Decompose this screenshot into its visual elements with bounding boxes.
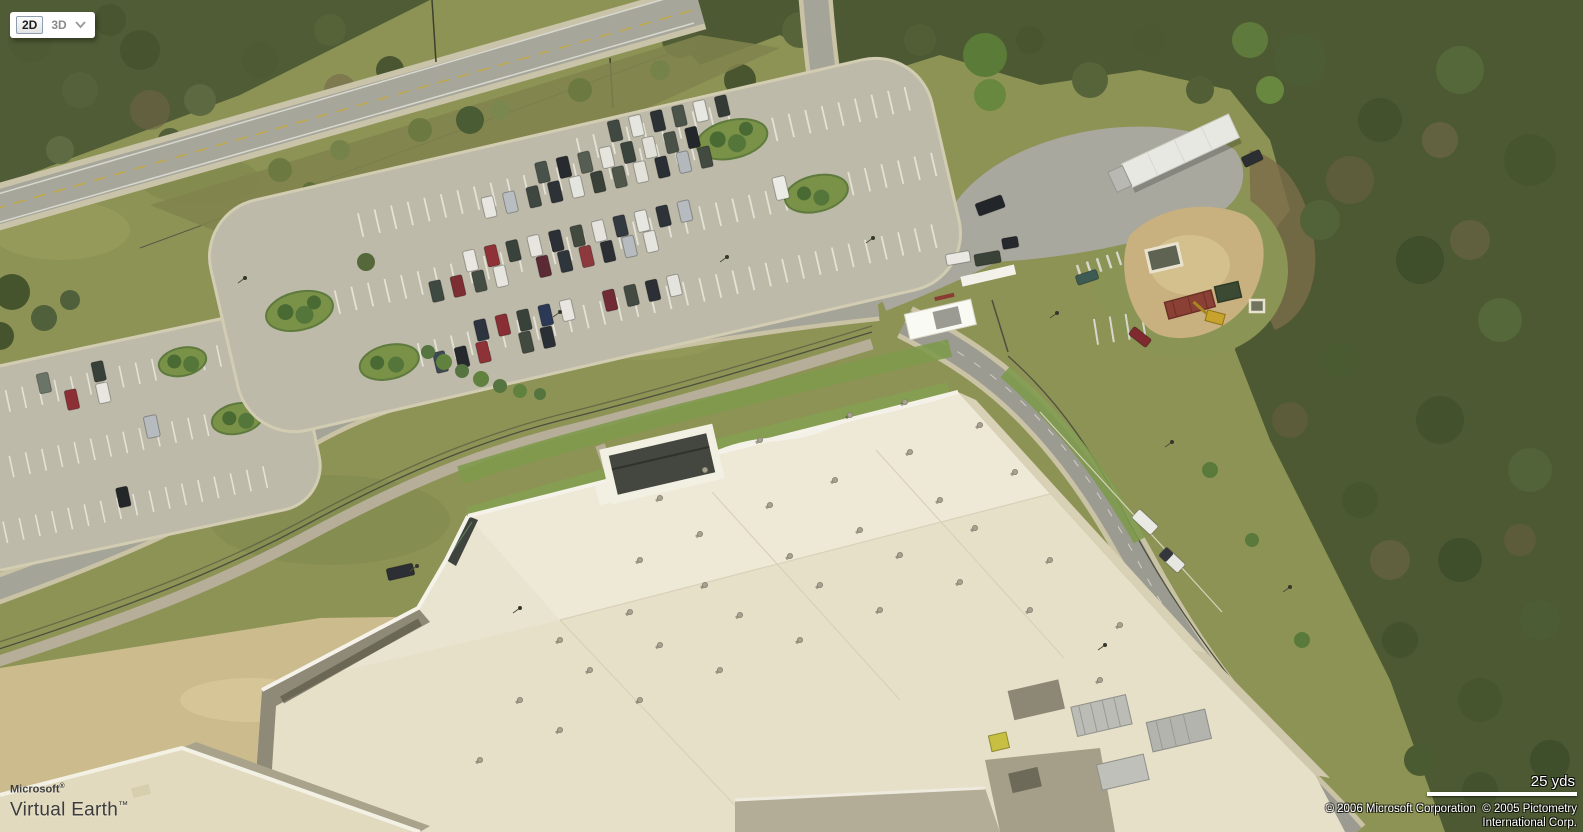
microsoft-wordmark: Microsoft® [10,781,128,796]
chevron-down-icon[interactable] [75,21,86,29]
rooftop-equipment [988,732,1009,752]
aerial-imagery[interactable] [0,0,1583,832]
scale-bar [1427,792,1577,796]
view-mode-toggle[interactable]: 2D 3D [10,12,95,38]
copyright-attribution: © 2006 Microsoft Corporation © 2005 Pict… [1325,802,1577,830]
virtual-earth-logo: Microsoft® Virtual Earth™ [10,781,128,820]
view-3d-button[interactable]: 3D [51,18,66,32]
map-scale: 25 yds [1427,773,1577,796]
attribution-line1: © 2006 Microsoft Corporation © 2005 Pict… [1325,802,1577,816]
attribution-line2: International Corp. [1325,816,1577,830]
view-2d-button[interactable]: 2D [16,16,43,34]
scale-label: 25 yds [1427,773,1577,790]
product-wordmark: Virtual Earth™ [10,796,128,820]
map-viewport[interactable]: 2D 3D Microsoft® Virtual Earth™ 25 yds ©… [0,0,1583,832]
